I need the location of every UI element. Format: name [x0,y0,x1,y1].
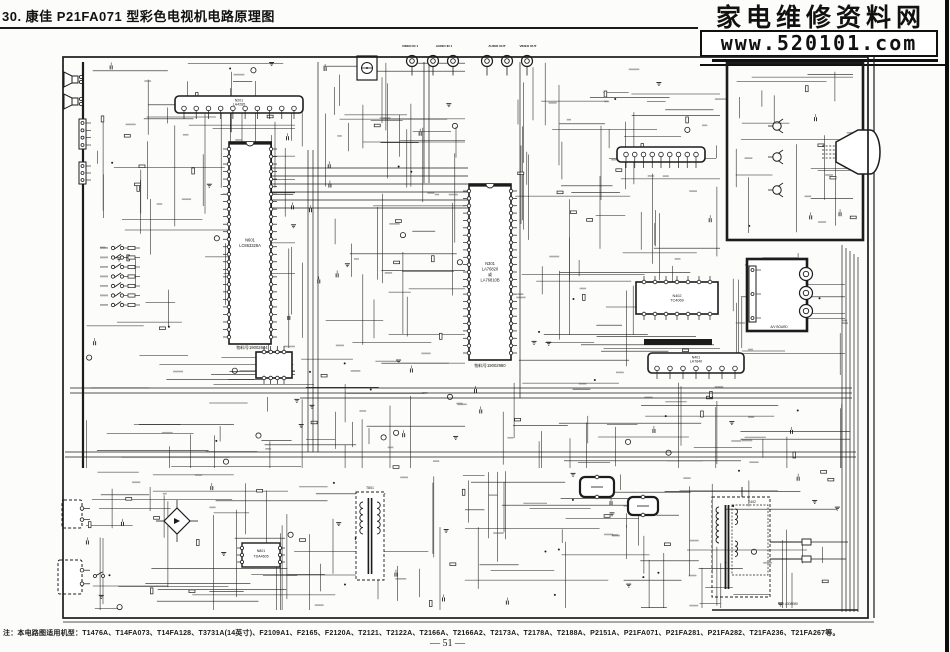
ic_h [617,147,705,168]
transistor [768,183,783,197]
rca [522,56,533,76]
jlabel-AUDIO OUT: AUDIO OUT [488,44,505,48]
applicable-models-note: 注：本电路图适用机型：T1476A、T14FA073、T14FA128、T373… [3,628,933,638]
svg-text:LA76820: LA76820 [482,267,499,272]
label-P/N 4308080: P/N 4308080 [778,602,798,606]
svg-text:N601: N601 [245,238,256,243]
svg-text:LA7840: LA7840 [690,359,702,363]
svg-text:T801: T801 [366,486,374,490]
ant [357,56,377,80]
svg-text:AUDIO OUT: AUDIO OUT [488,44,505,48]
schematic-canvas: N201LA4285N601LC863328A物料号19002644N301LA… [0,0,950,652]
keypad [100,245,140,307]
conn_v [79,162,91,184]
round_box [580,475,614,499]
svg-text:物料号19002980: 物料号19002980 [474,362,506,369]
svg-text:LA76810B: LA76810B [480,278,499,283]
svg-text:N801: N801 [257,549,266,553]
scan-edge-line [945,0,949,652]
round_box [628,495,658,517]
ic_v-N601: N601LC863328A [223,142,277,344]
ic_h-N401: N401LA7840 [648,353,744,379]
dashed_box [62,500,90,528]
jlabel-VIDEO OUT: VIDEO OUT [519,44,536,48]
conn_v [79,119,91,149]
svg-text:或: 或 [488,271,492,277]
svg-text:N301: N301 [485,261,496,266]
transistor [768,119,783,133]
bridge [156,500,198,542]
speaker [64,94,83,109]
crt [822,130,880,174]
dip_h [256,346,292,384]
rca [448,56,459,76]
rca [502,56,513,76]
svg-text:T402: T402 [748,500,756,504]
svg-text:P/N 4308080: P/N 4308080 [778,602,798,606]
transistor [768,150,783,164]
jlabel-AUDIO IN 1: AUDIO IN 1 [436,44,453,48]
ic_v-N301: N301LA76820或LA76810B [463,184,517,360]
rca [800,305,813,318]
scanned-schematic-page: 30. 康佳 P21FA071 型彩色电视机电路原理图 家电维修资料网 www.… [0,0,950,652]
box-N801: N801TDA4605 [237,543,285,567]
label-物料号19002980: 物料号19002980 [474,362,506,369]
schematic-frame [63,57,868,618]
xfmr-T: T801 [356,486,384,580]
svg-text:N402: N402 [672,294,681,298]
page-number: — 51 — [430,638,465,649]
svg-text:A/V BOARD: A/V BOARD [770,325,788,329]
jlabel-VIDEO IN 1: VIDEO IN 1 [402,44,418,48]
svg-text:VIDEO IN 1: VIDEO IN 1 [402,44,418,48]
svg-text:TC4069: TC4069 [670,299,684,303]
svg-text:TDA4605: TDA4605 [253,554,268,558]
svg-text:AUDIO IN 1: AUDIO IN 1 [436,44,453,48]
rca [800,287,813,300]
svg-text:LA4285: LA4285 [233,102,245,106]
bar [644,339,712,345]
dip_h-N402: N402TC4069 [636,276,718,320]
rca [407,56,418,76]
speaker [64,72,83,87]
svg-text:VIDEO OUT: VIDEO OUT [519,44,536,48]
rca [482,56,493,76]
rca [800,268,813,281]
ic_h-N201: N201LA4285 [175,96,303,119]
label-A/V BOARD: A/V BOARD [770,325,788,329]
svg-text:LC863328A: LC863328A [239,243,261,248]
